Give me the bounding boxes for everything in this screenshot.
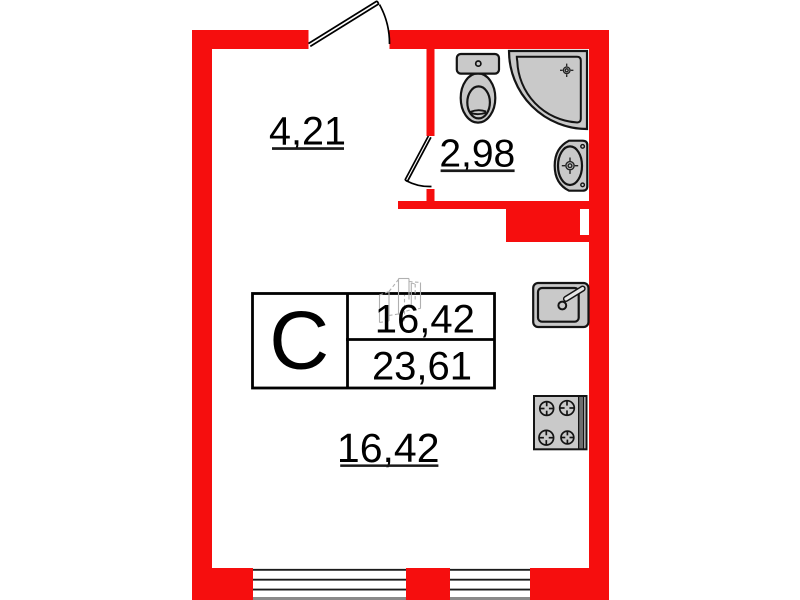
svg-text:16,42: 16,42	[375, 297, 475, 341]
svg-text:16,42: 16,42	[337, 425, 440, 471]
svg-text:23,61: 23,61	[372, 345, 472, 389]
svg-text:2,98: 2,98	[439, 132, 515, 175]
svg-text:4,21: 4,21	[269, 110, 346, 154]
svg-text:С: С	[269, 293, 329, 386]
